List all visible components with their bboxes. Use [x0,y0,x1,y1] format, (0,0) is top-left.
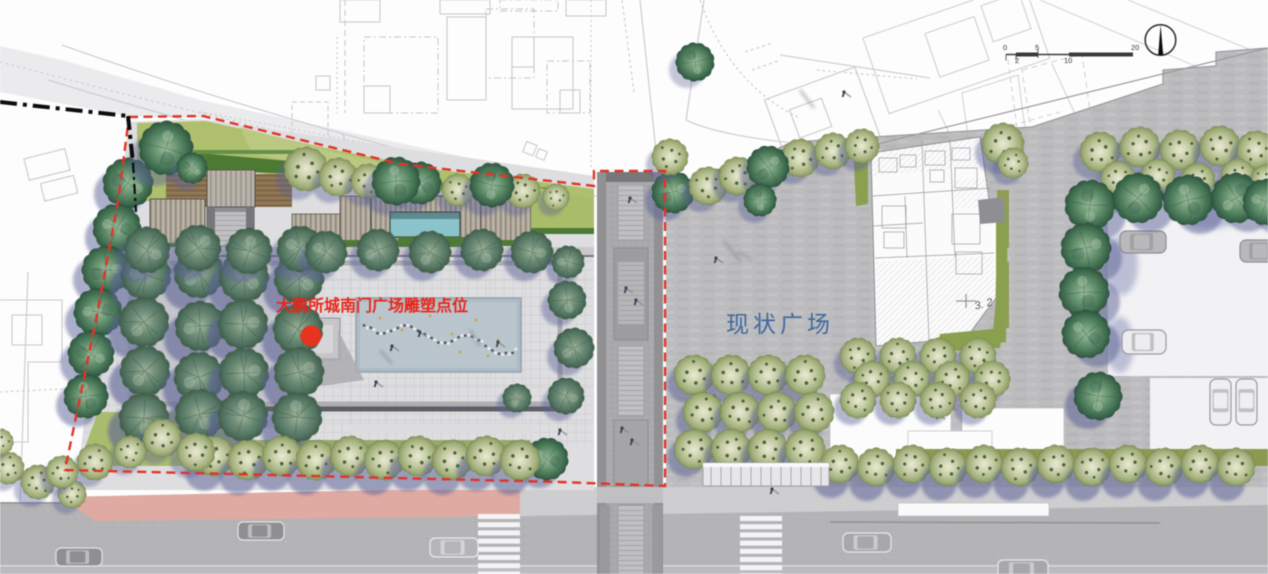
svg-text:大鹏所城南门广场雕塑点位: 大鹏所城南门广场雕塑点位 [276,296,468,315]
svg-text:10: 10 [1064,56,1072,65]
svg-text:20: 20 [1131,43,1139,52]
svg-text:5: 5 [1035,43,1039,52]
svg-text:0: 0 [1003,43,1007,52]
svg-text:现状广场: 现状广场 [726,311,834,337]
